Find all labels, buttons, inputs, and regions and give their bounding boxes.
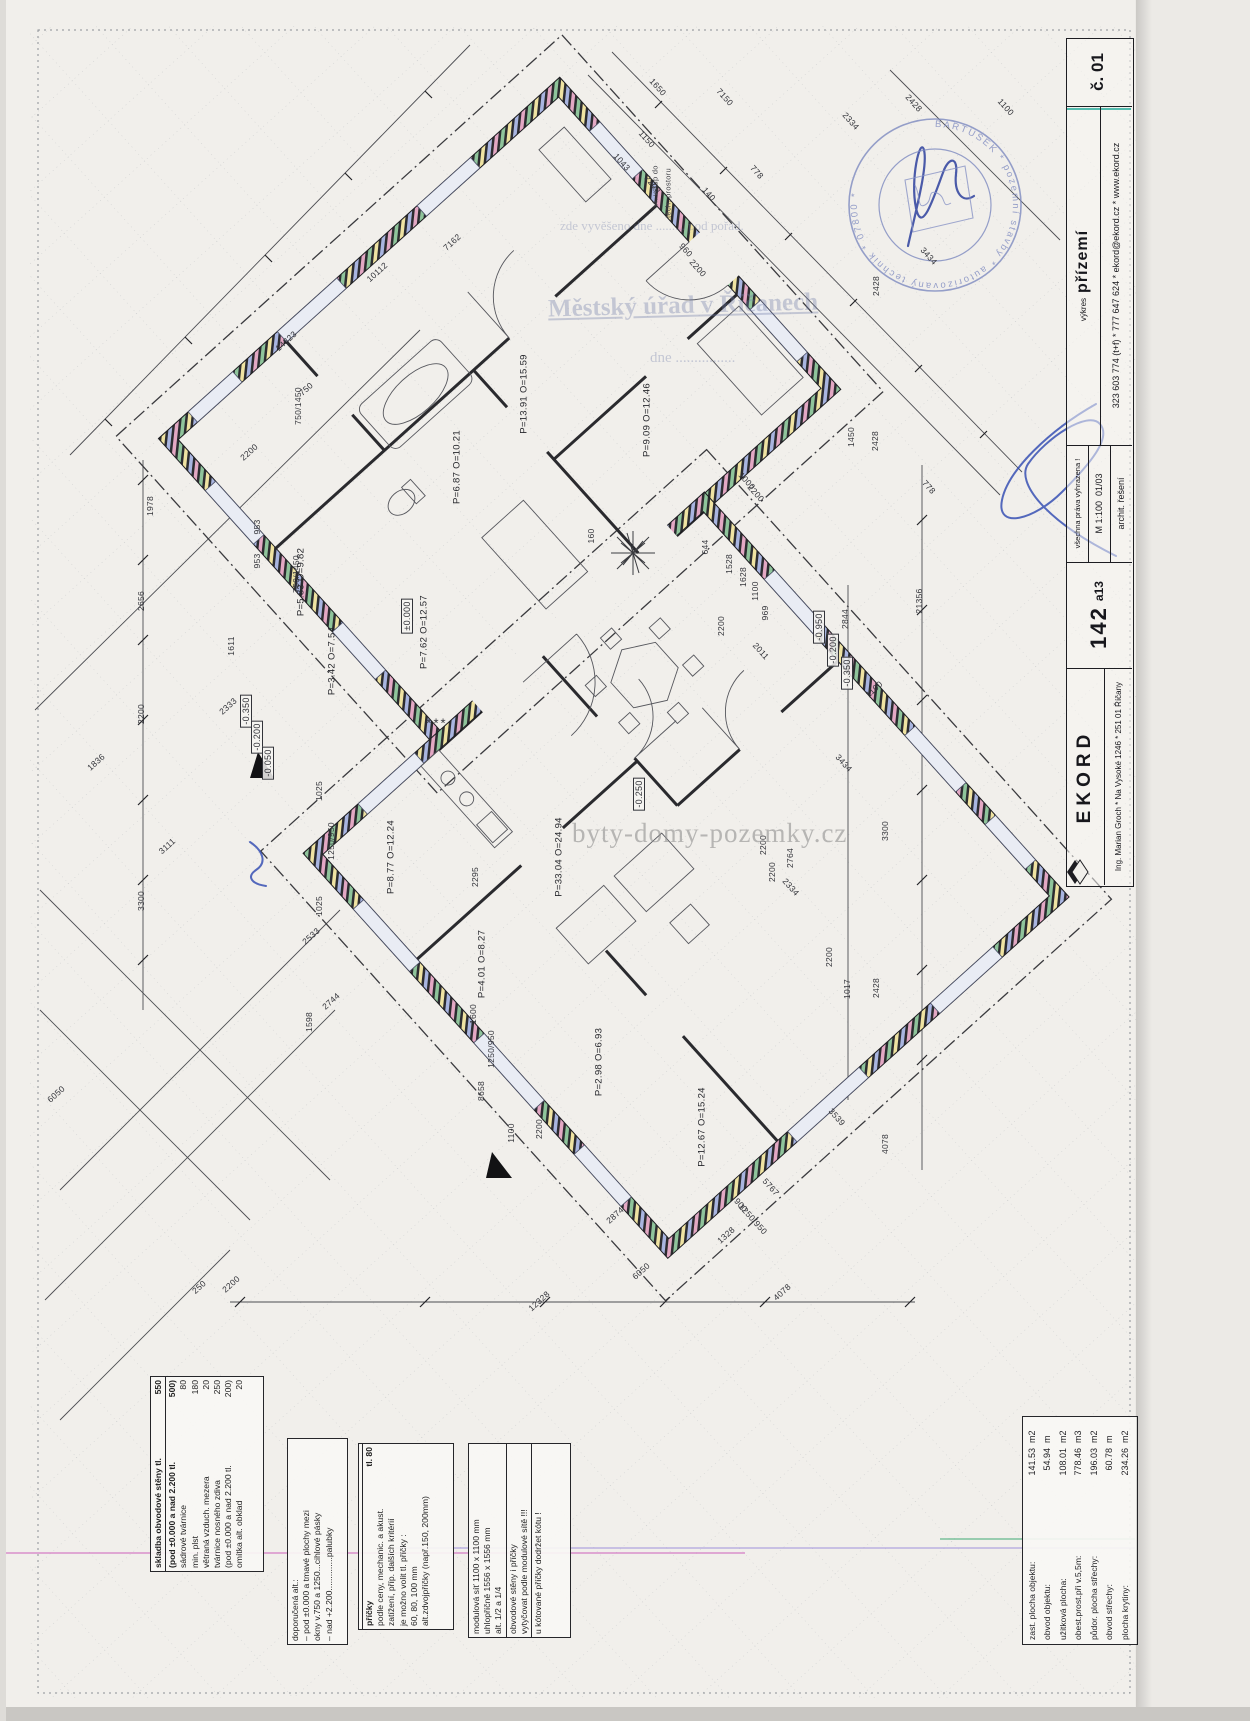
drawing-name: přízemí bbox=[1074, 230, 1092, 293]
model-number: 142 bbox=[1086, 606, 1112, 649]
area-table-row: plocha krytiny:234.26m2 bbox=[1118, 1417, 1133, 1644]
note-row: okny v.750 a 1250...cihlové pásky bbox=[312, 1439, 323, 1644]
area-table-row: zast. plocha objektu:141.53m2 bbox=[1025, 1417, 1040, 1644]
note-box-recommended-alt: doporučená alt.:– pod ±0.000 a tmavé plo… bbox=[287, 1438, 348, 1645]
scale-cell: M 1:100 01/03 bbox=[1088, 445, 1110, 562]
contact-line: 323 603 774 (t+f) * 777 647 624 * ekord@… bbox=[1111, 143, 1121, 409]
note-row: modulová síť 1100 x 1100 mm bbox=[471, 1444, 482, 1637]
drawing-label: výkres bbox=[1079, 298, 1088, 321]
drawing-name-cell: výkres přízemí bbox=[1066, 106, 1100, 445]
note-box-wall-composition: skladba obvodové stěny tl.550(pod ±0.000… bbox=[150, 1376, 264, 1572]
note-row: – nad +2.200..............palubky bbox=[324, 1439, 335, 1644]
note-row: sádrové tvárnice80 bbox=[178, 1377, 189, 1571]
note-box-module-grid: modulová síť 1100 x 1100 mmuhlopříčně 15… bbox=[468, 1443, 571, 1638]
rights-note: všechna práva vyhrazena ! bbox=[1073, 459, 1082, 549]
note-row: uhlopříčně 1556 x 1556 mm bbox=[482, 1444, 493, 1637]
sun-symbol bbox=[611, 531, 655, 575]
note-row: zatížení, příp. dalších kritérií bbox=[386, 1444, 397, 1629]
model-variant: a13 bbox=[1092, 581, 1106, 601]
rights-cell: všechna práva vyhrazena ! bbox=[1066, 445, 1088, 562]
scan-edge-left bbox=[0, 0, 6, 1721]
area-table-row: půdor. plocha střechy:196.03m2 bbox=[1087, 1417, 1102, 1644]
model-cell: 142 a13 bbox=[1066, 562, 1132, 668]
area-table-row: obvod střechy:60.78m bbox=[1102, 1417, 1117, 1644]
note-row: je možno volit tl. příčky : bbox=[398, 1444, 409, 1629]
paper-fold-shadow bbox=[1136, 0, 1152, 1721]
sheet-number-label: č. 01 bbox=[1088, 53, 1108, 91]
date-value: 01/03 bbox=[1094, 473, 1104, 496]
area-table-row: užitková plocha:108.01m2 bbox=[1056, 1417, 1071, 1644]
office-stamp-line-small: zde vyvěšeno dne ......... pod pořad. bbox=[560, 218, 744, 234]
brand-name: EKORD bbox=[1074, 730, 1096, 824]
discipline-cell: archit. řešení bbox=[1110, 445, 1132, 562]
scan-edge-bottom bbox=[0, 1707, 1250, 1721]
note-row: podle ceny, mechanic. a akust. bbox=[375, 1444, 386, 1629]
note-row: (pod ±0.000 a nad 2.200 tl.200) bbox=[223, 1377, 234, 1571]
scanned-floor-plan-sheet: BARTUŠEK * pozemní stavby * autorizovaný… bbox=[0, 0, 1250, 1721]
note-row: obvodové stěny i příčky bbox=[506, 1444, 519, 1637]
brand-cell: EKORD bbox=[1066, 668, 1104, 885]
office-stamp-date-line: dne ................ bbox=[650, 350, 735, 367]
discipline-label: archit. řešení bbox=[1116, 477, 1126, 529]
sheet-number: č. 01 bbox=[1066, 38, 1130, 106]
address-cell: Ing. Marian Groch * Na Vysoké 1246 * 251… bbox=[1104, 668, 1132, 885]
note-row: skladba obvodové stěny tl.550 bbox=[153, 1377, 164, 1571]
note-row: vytyčovat podle modulové sítě !!! bbox=[519, 1444, 530, 1637]
note-row: tvárnice nosného zdiva250 bbox=[212, 1377, 223, 1571]
area-table-row: obest.prost.při v.5,5m:778.46m3 bbox=[1071, 1417, 1086, 1644]
area-table-row: obvod objektu:54.94m bbox=[1040, 1417, 1055, 1644]
note-row: doporučená alt.: bbox=[290, 1439, 301, 1644]
address-line: Ing. Marian Groch * Na Vysoké 1246 * 251… bbox=[1114, 682, 1123, 871]
note-row: příčkytl. 80 bbox=[362, 1444, 375, 1629]
note-row: alt. 1/2 a 1/4 bbox=[493, 1444, 504, 1637]
note-row: alt.zdvojpříčky (např.150, 200mm) bbox=[420, 1444, 431, 1629]
area-summary-table: zast. plocha objektu:141.53m2obvod objek… bbox=[1022, 1416, 1138, 1645]
note-row: omítka alt. obklad20 bbox=[234, 1377, 245, 1571]
scale-value: M 1:100 bbox=[1094, 501, 1104, 534]
note-row: větraná vzduch. mezera20 bbox=[201, 1377, 212, 1571]
contact-cell: 323 603 774 (t+f) * 777 647 624 * ekord@… bbox=[1100, 106, 1132, 445]
note-row: – pod ±0.000 a tmavé plochy mezi bbox=[301, 1439, 312, 1644]
note-row: u kótované příčky dodržet kótu ! bbox=[531, 1444, 544, 1637]
note-row: min. plst180 bbox=[190, 1377, 201, 1571]
note-row: 60, 80, 100 mm bbox=[409, 1444, 420, 1629]
note-box-partitions: příčkytl. 80podle ceny, mechanic. a akus… bbox=[358, 1443, 454, 1630]
ekord-logo bbox=[1066, 859, 1092, 885]
note-row: (pod ±0.000 a nad 2.200 tl.500) bbox=[165, 1377, 178, 1571]
watermark: byty-domy-pozemky.cz bbox=[572, 818, 847, 849]
